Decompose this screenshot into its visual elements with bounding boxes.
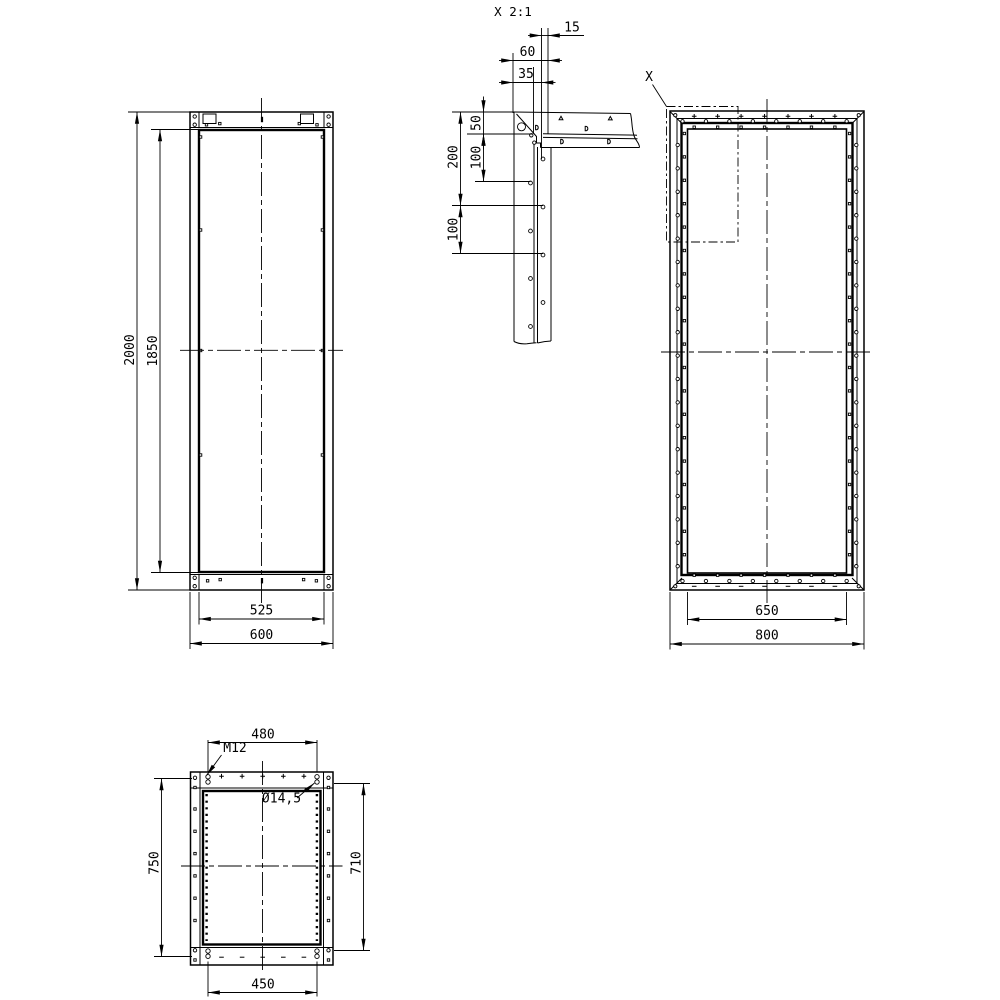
dim-35-label: 35 [518, 67, 534, 82]
detail-holes [518, 116, 613, 328]
plus-mark [715, 114, 720, 119]
hole-mark [676, 214, 679, 217]
square-hole-mark [327, 897, 329, 899]
square-hole-mark [848, 483, 850, 485]
square-hole-mark [693, 574, 695, 576]
square-hole-mark [683, 390, 685, 392]
dim-15-label: 15 [564, 21, 580, 36]
square-hole-mark [683, 366, 685, 368]
hole-mark [327, 949, 330, 952]
detail-x-callout: X [645, 70, 738, 242]
triangle-hole [559, 116, 563, 119]
hole-mark [676, 143, 679, 146]
hole-mark [822, 120, 825, 123]
square-hole-mark [787, 574, 789, 576]
hole-mark [676, 471, 679, 474]
hole-mark [855, 377, 858, 380]
square-hole-mark [683, 203, 685, 205]
square-hole-mark [327, 786, 329, 788]
dim-450-label: 450 [251, 978, 274, 993]
rear-view-centerlines [661, 99, 873, 603]
square-hole-mark [848, 530, 850, 532]
hole-mark [775, 120, 778, 123]
hole-mark [855, 565, 858, 568]
hole-mark [676, 424, 679, 427]
hole-mark [327, 776, 330, 779]
hole-mark [676, 377, 679, 380]
hole-mark [193, 776, 196, 779]
dim-750-label: 750 [148, 851, 163, 874]
dim-525-label: 525 [250, 604, 273, 619]
hole-mark [193, 949, 196, 952]
hole-mark [676, 284, 679, 287]
dim-800-label: 800 [755, 629, 778, 644]
square-hole-mark [787, 126, 789, 128]
dim-710-label: 710 [350, 851, 365, 874]
hole-diameter-callout: Ø14,5 [262, 783, 315, 807]
square-hole-mark [683, 343, 685, 345]
hole-mark [676, 565, 679, 568]
detail-x-marker-label: X [645, 70, 653, 85]
square-hole-mark [848, 507, 850, 509]
hole-mark [751, 120, 754, 123]
square-hole-mark [763, 126, 765, 128]
thread-callout: M12 [207, 741, 247, 776]
hole-mark [676, 354, 679, 357]
square-hole-mark [683, 132, 685, 134]
hole-mark [845, 120, 848, 123]
dim-2000-label: 2000 [123, 334, 138, 365]
detail-view: X 2:1 [447, 4, 640, 344]
hole-mark [681, 579, 684, 582]
hole-mark [855, 260, 858, 263]
front-view-centerlines [180, 98, 343, 606]
dim-60-label: 60 [520, 45, 536, 60]
dim-600-label: 600 [250, 628, 273, 643]
square-hole-mark [848, 366, 850, 368]
plan-view: 480 M12 Ø14,5 750 710 450 [148, 728, 370, 997]
square-hole-mark [194, 852, 196, 854]
square-hole-mark [848, 132, 850, 134]
front-view: 2000 1850 525 600 [123, 98, 343, 649]
square-hole-mark [194, 897, 196, 899]
plus-mark [833, 114, 838, 119]
hole-mark [855, 424, 858, 427]
square-hole-mark [683, 226, 685, 228]
square-hole-mark [716, 126, 718, 128]
square-hole-mark [848, 156, 850, 158]
dim-detail-60: 60 [499, 45, 562, 61]
square-hole-mark [683, 483, 685, 485]
hole-mark [855, 214, 858, 217]
square-hole-mark [810, 574, 812, 576]
square-hole-mark [683, 413, 685, 415]
hole-mark [676, 190, 679, 193]
square-hole-mark [848, 203, 850, 205]
dim-100-lower-label: 100 [447, 218, 462, 241]
d-slot-hole [561, 139, 564, 143]
square-hole-mark [848, 390, 850, 392]
hole-mark [676, 448, 679, 451]
square-hole-mark [848, 413, 850, 415]
detail-profile-geometry [514, 112, 640, 344]
hole-mark [728, 120, 731, 123]
hole-mark [855, 284, 858, 287]
square-hole-mark [194, 875, 196, 877]
square-hole-mark [327, 959, 329, 961]
hole-mark [676, 331, 679, 334]
technical-drawing-canvas: 2000 1850 525 600 X 2:1 [0, 0, 1000, 1000]
hole-mark [855, 494, 858, 497]
square-hole-mark [683, 507, 685, 509]
drawing-sheet: 2000 1850 525 600 X 2:1 [0, 0, 1000, 1000]
plus-mark [240, 774, 245, 779]
square-hole-mark [327, 875, 329, 877]
square-hole-mark [848, 179, 850, 181]
dim-detail-35: 35 [499, 67, 556, 83]
dim-650-label: 650 [755, 604, 778, 619]
hole-mark [855, 471, 858, 474]
dim-480-label: 480 [251, 728, 274, 743]
dim-plan-height-outer: 750 [148, 779, 192, 957]
square-hole-mark [740, 126, 742, 128]
square-hole-mark [763, 574, 765, 576]
plus-mark [786, 114, 791, 119]
square-hole-mark [848, 343, 850, 345]
dim-1850-label: 1850 [146, 335, 161, 366]
plus-mark [762, 114, 767, 119]
square-hole-mark [194, 919, 196, 921]
square-hole-mark [327, 852, 329, 854]
square-hole-mark [693, 126, 695, 128]
hole-mark [676, 518, 679, 521]
square-hole-mark [848, 226, 850, 228]
hole-mark [855, 401, 858, 404]
square-hole-mark [848, 460, 850, 462]
hole-mark [855, 354, 858, 357]
hole-mark [855, 518, 858, 521]
hole-mark [704, 579, 707, 582]
square-hole-mark [848, 296, 850, 298]
square-hole-mark [848, 437, 850, 439]
hole-mark [855, 448, 858, 451]
hole-mark [676, 307, 679, 310]
square-hole-mark [848, 273, 850, 275]
square-hole-mark [683, 437, 685, 439]
rear-view: X 650 800 [645, 70, 873, 650]
thread-m12-label: M12 [223, 741, 246, 756]
hole-mark [855, 307, 858, 310]
dim-detail-50: 50 [470, 97, 485, 150]
square-hole-mark [683, 460, 685, 462]
plus-mark [219, 774, 224, 779]
hole-mark [775, 579, 778, 582]
square-hole-mark [194, 959, 196, 961]
square-hole-mark [834, 126, 836, 128]
square-hole-mark [194, 808, 196, 810]
square-hole-mark [683, 249, 685, 251]
hole-dia-label: Ø14,5 [262, 792, 301, 807]
hole-mark [676, 167, 679, 170]
hole-mark [676, 401, 679, 404]
dim-front-height-inner: 1850 [146, 130, 199, 573]
square-hole-mark [683, 554, 685, 556]
hole-mark [855, 190, 858, 193]
dim-50-label: 50 [470, 115, 485, 131]
square-hole-mark [740, 574, 742, 576]
square-hole-mark [327, 808, 329, 810]
hole-mark [751, 579, 754, 582]
square-hole-mark [810, 126, 812, 128]
d-slot-hole [536, 125, 539, 129]
square-hole-mark [834, 574, 836, 576]
detail-title-label: X 2:1 [494, 4, 532, 19]
square-hole-mark [848, 320, 850, 322]
square-hole-mark [716, 574, 718, 576]
square-hole-mark [683, 273, 685, 275]
square-hole-mark [194, 786, 196, 788]
hole-mark [704, 120, 707, 123]
plus-mark [302, 774, 307, 779]
hole-mark [855, 331, 858, 334]
square-hole-mark [683, 156, 685, 158]
square-hole-mark [327, 830, 329, 832]
dim-detail-15: 15 [528, 21, 584, 36]
square-hole-mark [683, 296, 685, 298]
plus-mark [281, 774, 286, 779]
hole-mark [798, 579, 801, 582]
hole-mark [676, 494, 679, 497]
hole-mark [822, 579, 825, 582]
square-hole-mark [327, 919, 329, 921]
d-slot-hole [608, 139, 611, 143]
square-hole-mark [683, 320, 685, 322]
triangle-hole [608, 117, 612, 120]
plus-mark [739, 114, 744, 119]
hole-mark [676, 541, 679, 544]
dim-200-label: 200 [447, 145, 462, 168]
hole-mark [855, 541, 858, 544]
hole-mark [845, 579, 848, 582]
square-hole-mark [848, 249, 850, 251]
hole-mark [681, 120, 684, 123]
square-hole-mark [683, 179, 685, 181]
dim-detail-100-upper: 100 [470, 134, 485, 182]
hole-mark [855, 143, 858, 146]
d-slot-hole [585, 126, 588, 130]
square-hole-mark [848, 554, 850, 556]
hole-mark [676, 237, 679, 240]
hole-mark [798, 120, 801, 123]
square-hole-mark [683, 530, 685, 532]
dim-detail-100-lower: 100 [447, 206, 462, 254]
plus-mark [692, 114, 697, 119]
plus-mark [809, 114, 814, 119]
hole-mark [676, 260, 679, 263]
dim-100-upper-label: 100 [470, 146, 485, 169]
hole-mark [855, 167, 858, 170]
dim-plan-height-inner: 710 [334, 784, 370, 951]
dim-detail-200: 200 [447, 112, 462, 206]
square-hole-mark [194, 830, 196, 832]
hole-mark [855, 237, 858, 240]
hole-mark [728, 579, 731, 582]
